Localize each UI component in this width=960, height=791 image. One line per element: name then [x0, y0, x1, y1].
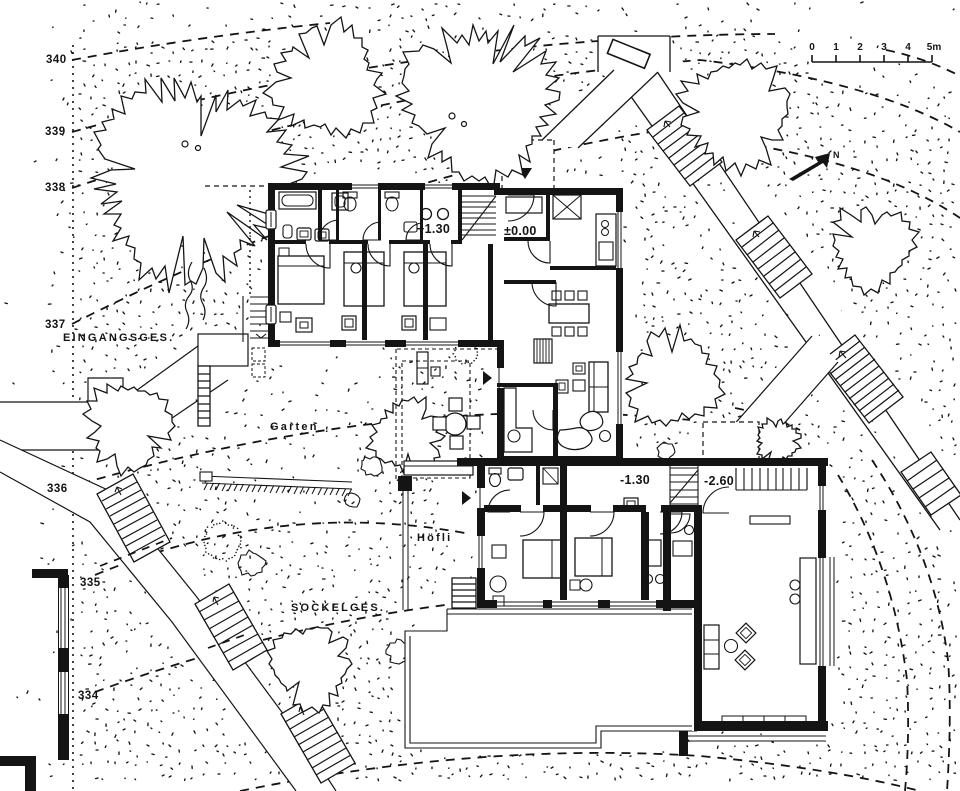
svg-text:0: 0	[809, 42, 815, 53]
svg-text:335: 335	[80, 577, 101, 589]
svg-text:334: 334	[78, 690, 99, 702]
svg-text:4: 4	[905, 42, 911, 53]
svg-text:340: 340	[46, 54, 67, 66]
svg-text:339: 339	[45, 126, 66, 138]
svg-text:3: 3	[881, 42, 887, 53]
svg-text:Garten: Garten	[270, 421, 319, 433]
svg-text:N: N	[833, 150, 840, 160]
svg-text:2: 2	[857, 42, 863, 53]
svg-text:337: 337	[45, 319, 66, 331]
svg-text:-2.60: -2.60	[704, 474, 734, 488]
svg-text:EINGANGSGES.: EINGANGSGES.	[63, 332, 174, 344]
svg-text:-1.30: -1.30	[620, 473, 650, 487]
svg-text:5m: 5m	[927, 42, 942, 53]
svg-text:336: 336	[47, 483, 68, 495]
svg-text:338: 338	[45, 182, 66, 194]
svg-text:Höfli: Höfli	[417, 532, 452, 544]
svg-text:SOCKELGES.: SOCKELGES.	[291, 602, 385, 614]
svg-text:±0.00: ±0.00	[504, 224, 537, 238]
svg-text:+1.30: +1.30	[417, 222, 450, 236]
svg-text:1: 1	[833, 42, 839, 53]
